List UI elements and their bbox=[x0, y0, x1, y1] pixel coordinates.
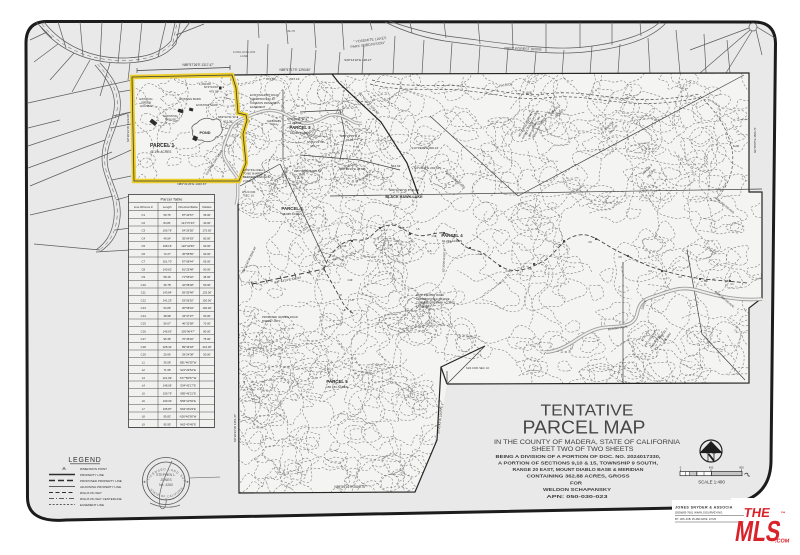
svg-text:PARCEL 2: PARCEL 2 bbox=[289, 125, 311, 130]
svg-text:CONTAINING 362.88 ACRES, GROSS: CONTAINING 362.88 ACRES, GROSS bbox=[527, 474, 631, 480]
svg-text:95.95': 95.95' bbox=[163, 422, 171, 426]
svg-text:148.06': 148.06' bbox=[163, 384, 173, 388]
svg-text:81°25'48": 81°25'48" bbox=[182, 267, 194, 271]
svg-text:.COM: .COM bbox=[774, 539, 790, 545]
svg-text:S21°29'54"E: S21°29'54"E bbox=[180, 368, 196, 372]
svg-text:N26°40'56"W: N26°40'56"W bbox=[180, 415, 197, 419]
svg-text:C18: C18 bbox=[141, 345, 147, 349]
svg-text:C13: C13 bbox=[432, 234, 437, 238]
svg-text:PARCEL 1: PARCEL 1 bbox=[150, 143, 174, 149]
svg-text:159.79': 159.79' bbox=[163, 391, 173, 395]
svg-text:50.00': 50.00' bbox=[203, 283, 211, 287]
svg-text:150.00': 150.00' bbox=[202, 298, 212, 302]
svg-text:L4: L4 bbox=[142, 384, 146, 388]
svg-text:475.03': 475.03' bbox=[209, 90, 219, 94]
svg-text:AND PROPOSED 40' WIDE: AND PROPOSED 40' WIDE bbox=[416, 297, 450, 301]
svg-text:100.00': 100.00' bbox=[202, 306, 212, 310]
svg-text:45.00': 45.00' bbox=[203, 275, 211, 279]
svg-text:Parcel Table: Parcel Table bbox=[161, 196, 184, 201]
svg-text:EXISTING BARN: EXISTING BARN bbox=[179, 97, 201, 101]
svg-text:FOR: FOR bbox=[570, 481, 583, 487]
svg-text:N0°26'47"E 291.64': N0°26'47"E 291.64' bbox=[414, 166, 440, 170]
svg-text:(559)683-7661 WWW.JSSURVEYING: (559)683-7661 WWW.JSSURVEYING. bbox=[675, 511, 723, 515]
svg-text:198.16': 198.16' bbox=[163, 244, 173, 248]
svg-text:C13: C13 bbox=[141, 306, 147, 310]
svg-text:C12: C12 bbox=[141, 298, 147, 302]
svg-text:53°56'52": 53°56'52" bbox=[182, 298, 194, 302]
svg-text:C5: C5 bbox=[141, 244, 145, 248]
svg-text:JONES: JONES bbox=[160, 478, 172, 482]
svg-text:400: 400 bbox=[709, 466, 714, 470]
svg-text:58.16': 58.16' bbox=[163, 275, 171, 279]
svg-text:39+78: 39+78 bbox=[287, 29, 295, 33]
svg-text:STEPHEN L.: STEPHEN L. bbox=[156, 473, 176, 477]
svg-text:185.77': 185.77' bbox=[310, 144, 320, 148]
svg-text:84.81': 84.81' bbox=[163, 221, 171, 225]
svg-text:36.78': 36.78' bbox=[163, 283, 171, 287]
svg-text:109.32': 109.32' bbox=[163, 399, 173, 403]
svg-text:C9: C9 bbox=[141, 275, 145, 279]
svg-text:ADJOINING PROPERTY LINE: ADJOINING PROPERTY LINE bbox=[80, 485, 121, 489]
svg-text:46°32'58": 46°32'58" bbox=[182, 322, 194, 326]
svg-text:EASEMENT LINE: EASEMENT LINE bbox=[80, 503, 104, 507]
svg-text:PARCEL 5: PARCEL 5 bbox=[326, 379, 348, 384]
svg-text:C4: C4 bbox=[648, 269, 652, 273]
svg-text:146.63': 146.63' bbox=[163, 329, 173, 333]
svg-text:C15: C15 bbox=[141, 322, 147, 326]
svg-text:Direction/Delta: Direction/Delta bbox=[179, 205, 198, 209]
svg-text:N56°42'52"E: N56°42'52"E bbox=[180, 399, 196, 403]
svg-text:S34°42'17"E: S34°42'17"E bbox=[180, 384, 196, 388]
svg-text:N89°51'16"E 2565.75': N89°51'16"E 2565.75' bbox=[334, 485, 365, 489]
svg-text:328.42': 328.42' bbox=[163, 345, 173, 349]
svg-text:PROPERTY LINE: PROPERTY LINE bbox=[80, 473, 104, 477]
svg-text:97.04': 97.04' bbox=[346, 138, 355, 142]
svg-text:N39°54'26"E 46.96': N39°54'26"E 46.96' bbox=[339, 167, 365, 171]
svg-text:APN: 050-030-023: APN: 050-030-023 bbox=[547, 494, 608, 500]
svg-text:PARCEL 3: PARCEL 3 bbox=[281, 206, 303, 211]
svg-text:RIGHT-OF-WAY CENTERLINE: RIGHT-OF-WAY CENTERLINE bbox=[80, 497, 122, 501]
svg-text:90.00': 90.00' bbox=[203, 252, 211, 256]
svg-text:95.82': 95.82' bbox=[163, 415, 171, 419]
svg-text:RIGHT-OF-WAY: RIGHT-OF-WAY bbox=[80, 491, 102, 495]
svg-text:80.00': 80.00' bbox=[203, 329, 211, 333]
svg-text:C16: C16 bbox=[141, 329, 147, 333]
svg-text:Radius: Radius bbox=[203, 205, 213, 209]
svg-text:EASEMENT: EASEMENT bbox=[250, 105, 266, 109]
svg-text:PROPOSED PROPERTY LINE: PROPOSED PROPERTY LINE bbox=[80, 479, 122, 483]
svg-text:C7: C7 bbox=[141, 260, 145, 264]
svg-text:BY: JRS JOB: 25-286: BY: JRS JOB: 25-286 DATE: 1/7/26 bbox=[675, 517, 717, 521]
svg-text:COMMON DRIVEWAY ACCESS: COMMON DRIVEWAY ACCESS bbox=[416, 301, 455, 305]
svg-text:SEC. 10: SEC. 10 bbox=[244, 194, 254, 198]
svg-text:C16: C16 bbox=[342, 244, 347, 248]
svg-text:L1: L1 bbox=[142, 360, 146, 364]
svg-text:No. 4260: No. 4260 bbox=[159, 483, 173, 487]
svg-text:42°08'48": 42°08'48" bbox=[182, 283, 194, 287]
svg-text:S39°14'10"E 148.27': S39°14'10"E 148.27' bbox=[344, 58, 372, 62]
svg-text:C2: C2 bbox=[704, 279, 708, 283]
svg-text:HOUSE: HOUSE bbox=[166, 118, 176, 122]
svg-text:WELDON SCHAPANSKY: WELDON SCHAPANSKY bbox=[543, 487, 612, 493]
svg-text:140.62': 140.62' bbox=[163, 267, 173, 271]
svg-text:38.98': 38.98' bbox=[163, 314, 171, 318]
svg-text:N89°57'26"E 1317.47': N89°57'26"E 1317.47' bbox=[182, 63, 213, 67]
svg-text:96.35': 96.35' bbox=[163, 337, 171, 341]
svg-text:WALL: WALL bbox=[271, 122, 279, 126]
svg-text:C1: C1 bbox=[141, 213, 145, 217]
svg-text:165.78± ACRES: 165.78± ACRES bbox=[326, 385, 348, 389]
svg-text:71°55'32": 71°55'32" bbox=[182, 275, 194, 279]
svg-text:N80°00'00"E 119.50': N80°00'00"E 119.50' bbox=[294, 169, 322, 173]
svg-text:N89°22'05"W 1740.81': N89°22'05"W 1740.81' bbox=[389, 188, 420, 192]
svg-text:LEGEND: LEGEND bbox=[68, 457, 101, 464]
svg-text:50.00': 50.00' bbox=[203, 353, 211, 357]
svg-text:N62°39'23"E: N62°39'23"E bbox=[180, 407, 196, 411]
svg-text:65°55'48": 65°55'48" bbox=[182, 291, 194, 295]
svg-text:C17: C17 bbox=[141, 337, 147, 341]
svg-text:872.86': 872.86' bbox=[266, 77, 276, 81]
svg-text:C14: C14 bbox=[400, 226, 405, 230]
svg-text:30°58'04": 30°58'04" bbox=[182, 306, 194, 310]
svg-text:L8: L8 bbox=[142, 415, 146, 419]
svg-text:43°37'07": 43°37'07" bbox=[182, 314, 194, 318]
svg-text:PARCEL MAP: PARCEL MAP bbox=[523, 418, 646, 438]
svg-text:C8: C8 bbox=[338, 293, 342, 297]
svg-text:C17: C17 bbox=[372, 255, 377, 259]
svg-text:EXISTING WELL: EXISTING WELL bbox=[243, 168, 264, 172]
svg-text:50.00': 50.00' bbox=[203, 314, 211, 318]
svg-text:RANGE 20 EAST, MOUNT DIABLO BA: RANGE 20 EAST, MOUNT DIABLO BASE & MERID… bbox=[513, 467, 645, 473]
svg-text:N69°02'31"W ●: N69°02'31"W ● bbox=[218, 115, 239, 119]
svg-text:C3: C3 bbox=[678, 275, 682, 279]
svg-text:L3: L3 bbox=[142, 376, 146, 380]
svg-text:R/W1-97-160: R/W1-97-160 bbox=[262, 319, 278, 323]
svg-text:C19: C19 bbox=[348, 278, 353, 282]
svg-text:195.87': 195.87' bbox=[163, 407, 173, 411]
svg-text:80.00': 80.00' bbox=[203, 236, 211, 240]
svg-text:C2: C2 bbox=[141, 221, 145, 225]
svg-text:40.00': 40.00' bbox=[203, 221, 211, 225]
svg-text:HOUSES: HOUSES bbox=[140, 104, 152, 108]
svg-text:DIMENSION POINT: DIMENSION POINT bbox=[80, 467, 107, 471]
svg-text:Line #/Curve #: Line #/Curve # bbox=[134, 205, 153, 209]
svg-text:S0°20'23"W 1351.47': S0°20'23"W 1351.47' bbox=[233, 413, 237, 442]
svg-text:LANE: LANE bbox=[240, 54, 248, 58]
svg-text:8+00: 8+00 bbox=[733, 144, 740, 148]
svg-text:C8: C8 bbox=[141, 267, 145, 271]
svg-text:91.24± ACRES: 91.24± ACRES bbox=[442, 239, 462, 243]
svg-text:125.00': 125.00' bbox=[202, 291, 212, 295]
svg-text:S85°45'21"E: S85°45'21"E bbox=[180, 391, 196, 395]
svg-text:C7: C7 bbox=[558, 243, 562, 247]
svg-text:105°06'47": 105°06'47" bbox=[181, 329, 195, 333]
svg-text:N74°04'23"W ●: N74°04'23"W ● bbox=[204, 85, 225, 89]
svg-text:175.00': 175.00' bbox=[202, 229, 212, 233]
svg-text:C9: C9 bbox=[528, 267, 532, 271]
svg-text:54.05': 54.05' bbox=[163, 306, 171, 310]
svg-text:C5: C5 bbox=[618, 255, 622, 259]
svg-text:C15: C15 bbox=[388, 243, 393, 247]
svg-text:C1: C1 bbox=[730, 282, 734, 286]
svg-text:N: N bbox=[706, 450, 716, 465]
svg-text:EASEMENT: EASEMENT bbox=[416, 304, 431, 308]
svg-text:42.09± ACRES: 42.09± ACRES bbox=[290, 131, 310, 135]
svg-text:35.00': 35.00' bbox=[203, 213, 211, 217]
svg-text:L5: L5 bbox=[142, 391, 146, 395]
svg-text:542.64': 542.64' bbox=[391, 164, 401, 168]
svg-text:59.76': 59.76' bbox=[163, 213, 171, 217]
svg-text:71.95': 71.95' bbox=[163, 368, 171, 372]
svg-text:800: 800 bbox=[739, 466, 744, 470]
svg-text:75.00': 75.00' bbox=[203, 337, 211, 341]
svg-text:C10: C10 bbox=[506, 269, 511, 273]
svg-text:PROPOSED 40' WIDE ROAD: PROPOSED 40' WIDE ROAD bbox=[262, 315, 298, 319]
svg-text:537.14': 537.14' bbox=[290, 77, 300, 81]
svg-text:EXISTING SHOP: EXISTING SHOP bbox=[196, 103, 218, 107]
svg-text:C14: C14 bbox=[141, 314, 147, 318]
svg-text:C11: C11 bbox=[141, 291, 146, 295]
svg-text:216.36': 216.36' bbox=[292, 121, 302, 125]
svg-text:65.00': 65.00' bbox=[203, 260, 211, 264]
svg-text:W 1/4 COR.: W 1/4 COR. bbox=[242, 190, 256, 194]
svg-text:54°26'55": 54°26'55" bbox=[182, 229, 194, 233]
svg-text:C11: C11 bbox=[478, 252, 483, 256]
svg-text:90.00': 90.00' bbox=[203, 267, 211, 271]
svg-text:56.67': 56.67' bbox=[163, 322, 171, 326]
svg-text:N62°43'45"E: N62°43'45"E bbox=[180, 422, 196, 426]
svg-text:SCALE 1:400: SCALE 1:400 bbox=[698, 480, 725, 485]
svg-text:C3: C3 bbox=[141, 229, 145, 233]
svg-text:SHEET TWO OF TWO SHEETS: SHEET TWO OF TWO SHEETS bbox=[532, 446, 635, 453]
svg-text:29°24'38": 29°24'38" bbox=[182, 353, 194, 357]
svg-text:25.66': 25.66' bbox=[163, 353, 171, 357]
svg-text:POND: POND bbox=[200, 131, 211, 135]
svg-text:N0°35'05"E 1583.71': N0°35'05"E 1583.71' bbox=[753, 127, 757, 153]
svg-text:A PORTION OF SECTIONS 9,10 & 1: A PORTION OF SECTIONS 9,10 & 15, TOWNSHI… bbox=[498, 461, 659, 467]
svg-text:126°44'56": 126°44'56" bbox=[181, 244, 195, 248]
svg-text:72.27': 72.27' bbox=[163, 252, 171, 256]
svg-text:S77°56'57"W: S77°56'57"W bbox=[180, 376, 197, 380]
svg-text:N89°57'17"E 1290.80': N89°57'17"E 1290.80' bbox=[279, 68, 310, 72]
svg-text:™: ™ bbox=[780, 511, 786, 517]
svg-text:BETWEEN PARCELS: BETWEEN PARCELS bbox=[243, 175, 270, 179]
svg-text:70.00': 70.00' bbox=[203, 322, 211, 326]
svg-text:L9: L9 bbox=[142, 422, 146, 426]
svg-text:41.19± ACRES: 41.19± ACRES bbox=[150, 150, 171, 154]
svg-text:C6: C6 bbox=[141, 252, 145, 256]
svg-text:EXISTING DIRT ROAD: EXISTING DIRT ROAD bbox=[416, 293, 444, 297]
svg-text:87°43'57": 87°43'57" bbox=[182, 213, 194, 217]
svg-text:L7: L7 bbox=[142, 407, 146, 411]
svg-text:C4: C4 bbox=[141, 236, 145, 240]
svg-text:161.70': 161.70' bbox=[163, 260, 173, 264]
svg-text:87°08'44": 87°08'44" bbox=[182, 260, 194, 264]
svg-text:S10°19'09"E 300.24': S10°19'09"E 300.24' bbox=[411, 146, 439, 150]
svg-text:35°04'53": 35°04'53" bbox=[182, 236, 194, 240]
svg-text:89°36'18": 89°36'18" bbox=[182, 345, 194, 349]
svg-text:Length: Length bbox=[163, 205, 172, 209]
svg-text:BEING A DIVISION OF A PORTION: BEING A DIVISION OF A PORTION OF DOC. NO… bbox=[496, 454, 662, 460]
svg-text:49.54': 49.54' bbox=[163, 236, 171, 240]
svg-text:L2: L2 bbox=[142, 368, 146, 372]
svg-text:BLACK HAWK LAKE: BLACK HAWK LAKE bbox=[385, 195, 423, 199]
svg-text:N89°31'26"E 1320.67': N89°31'26"E 1320.67' bbox=[177, 182, 207, 186]
svg-text:L6: L6 bbox=[142, 399, 146, 403]
svg-text:S1/4 COR. SEC. 10: S1/4 COR. SEC. 10 bbox=[466, 366, 489, 370]
svg-text:PARCEL 4: PARCEL 4 bbox=[441, 233, 463, 238]
svg-text:166.76': 166.76' bbox=[163, 229, 173, 233]
svg-text:121°37'43": 121°37'43" bbox=[181, 221, 195, 225]
svg-text:C19: C19 bbox=[141, 353, 147, 357]
svg-text:35.08': 35.08' bbox=[163, 360, 171, 364]
svg-text:221.99': 221.99' bbox=[163, 376, 173, 380]
svg-text:45°58'55": 45°58'55" bbox=[182, 252, 194, 256]
svg-text:141.23': 141.23' bbox=[163, 298, 173, 302]
svg-text:C10: C10 bbox=[141, 283, 147, 287]
svg-text:AVE: AVE bbox=[526, 91, 532, 95]
svg-text:S81°46'35"W: S81°46'35"W bbox=[180, 360, 197, 364]
svg-text:S0°20'23"W 1329.96': S0°20'23"W 1329.96' bbox=[126, 113, 130, 142]
svg-text:JONES SNYDER & ASSOCIA: JONES SNYDER & ASSOCIA bbox=[675, 506, 733, 510]
svg-text:2 AND 3: 2 AND 3 bbox=[243, 179, 254, 183]
svg-text:70°45'40": 70°45'40" bbox=[182, 337, 194, 341]
svg-text:TO BE SHARED: TO BE SHARED bbox=[243, 172, 263, 176]
svg-text:90.00': 90.00' bbox=[203, 244, 211, 248]
svg-text:C6: C6 bbox=[588, 240, 592, 244]
svg-text:112.36': 112.36' bbox=[223, 120, 233, 124]
svg-text:143.84': 143.84' bbox=[163, 291, 173, 295]
svg-text:210.00': 210.00' bbox=[202, 345, 212, 349]
svg-text:45.94± ACRES: 45.94± ACRES bbox=[282, 212, 302, 216]
